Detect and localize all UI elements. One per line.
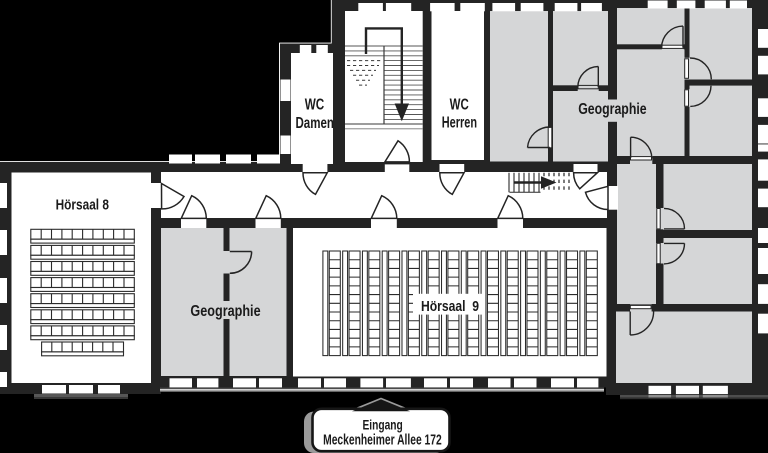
svg-text:Hörsaal 9: Hörsaal 9 xyxy=(421,298,479,315)
svg-text:Hörsaal 8: Hörsaal 8 xyxy=(56,196,110,213)
svg-text:WC: WC xyxy=(305,96,325,113)
svg-text:Meckenheimer Allee 172: Meckenheimer Allee 172 xyxy=(323,432,442,448)
svg-text:Herren: Herren xyxy=(442,114,477,131)
svg-text:Geographie: Geographie xyxy=(190,303,260,321)
svg-text:Geographie: Geographie xyxy=(578,101,647,119)
svg-text:WC: WC xyxy=(450,96,469,113)
svg-text:Damen: Damen xyxy=(295,114,334,131)
